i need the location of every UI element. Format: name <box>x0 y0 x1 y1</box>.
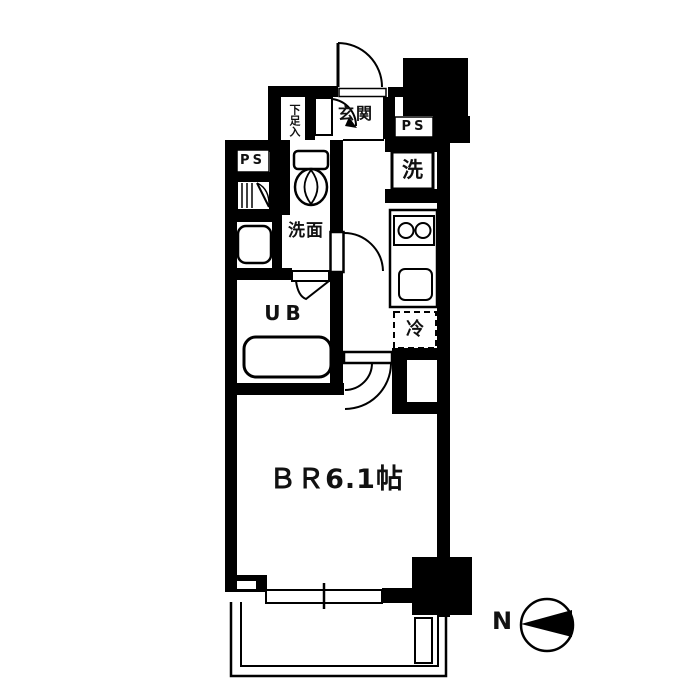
compass-needle <box>521 610 572 637</box>
wall-right-outer <box>437 137 450 617</box>
wall <box>383 97 395 139</box>
label-unit-bath: UB <box>254 302 316 324</box>
bathtub-icon <box>244 337 331 377</box>
structural-column-bottom <box>412 557 472 615</box>
structural-column-top <box>403 58 468 116</box>
label-entrance: 玄関 <box>328 105 384 123</box>
wall <box>392 402 450 414</box>
balcony-inner-edge <box>241 602 438 666</box>
bedroom-door-leaf <box>344 352 392 363</box>
folding-door-frame <box>292 271 329 281</box>
folding-door-panel <box>296 281 329 299</box>
wall-left-outer <box>225 140 237 592</box>
unit-bath-folding-door <box>292 271 329 299</box>
entrance-threshold <box>339 89 386 97</box>
label-bedroom: ＢＲ6.1帖 <box>235 465 438 495</box>
label-refrigerator: 冷 <box>394 312 436 348</box>
kitchen-counter <box>390 210 437 307</box>
wall <box>385 189 440 203</box>
wall <box>382 588 412 603</box>
label-pipe-space-left: PS <box>236 150 269 172</box>
wall <box>225 383 344 395</box>
washroom-door-arc <box>344 233 383 271</box>
label-north: N <box>488 608 516 634</box>
wall <box>388 87 403 97</box>
wall <box>225 268 292 280</box>
label-shoe-storage: 下足入 <box>284 96 300 144</box>
label-pipe-space-top: PS <box>395 117 433 137</box>
wall <box>270 140 290 215</box>
floor-plan-page: 玄関 下足入 PS PS 洗 洗面 UB 冷 ＢＲ6.1帖 N <box>0 0 700 700</box>
entrance-door-arc <box>338 43 382 87</box>
kitchen-sink-icon <box>399 269 432 300</box>
toilet-icon <box>294 151 328 205</box>
wall <box>305 92 315 140</box>
toilet-tank <box>294 151 328 169</box>
bedroom-door-arc-inner <box>345 363 372 390</box>
bedroom-door-arc <box>345 364 391 409</box>
meter-cabinet <box>237 181 270 210</box>
toilet-bowl <box>295 169 327 205</box>
wall <box>268 86 281 142</box>
wall <box>330 140 343 233</box>
wall-notch <box>237 581 256 589</box>
compass-icon <box>521 599 573 651</box>
washbasin-icon <box>238 226 271 263</box>
label-washing-machine: 洗 <box>392 152 433 189</box>
balcony-partition-board <box>415 618 432 663</box>
label-washroom: 洗面 <box>279 222 333 241</box>
